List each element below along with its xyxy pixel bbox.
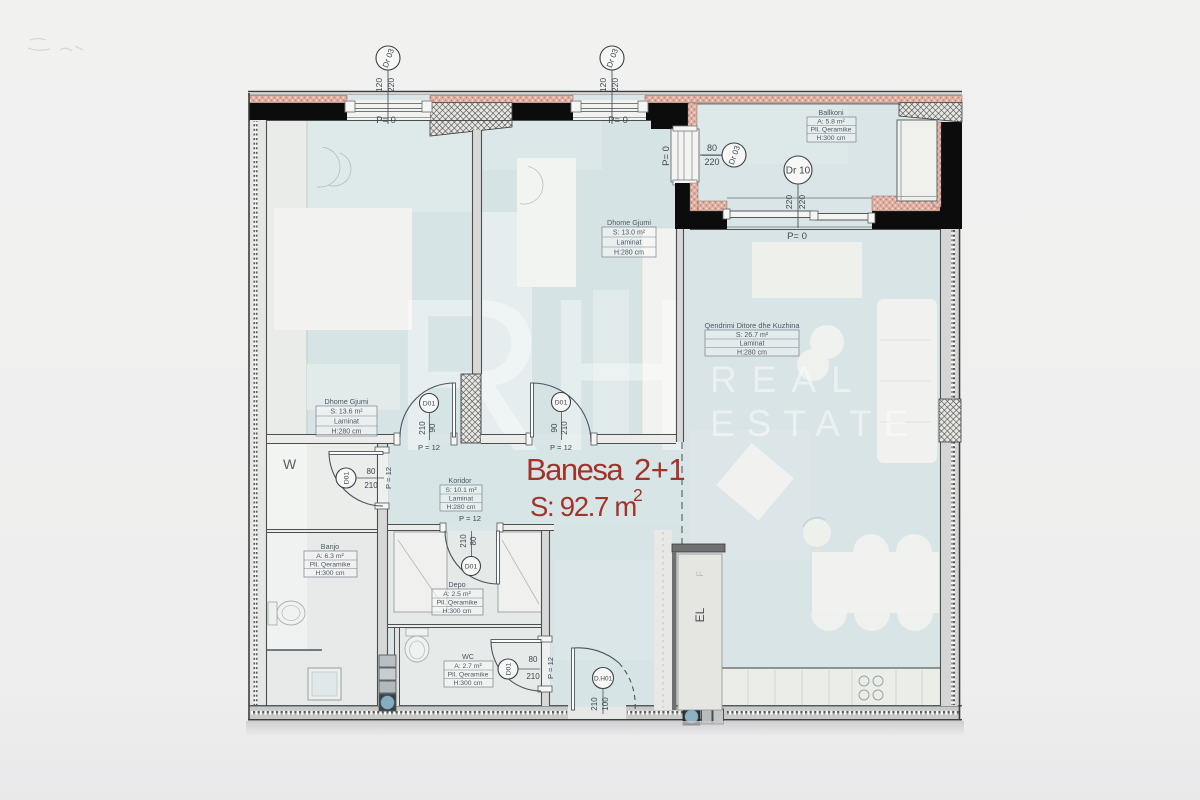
svg-text:Ballkoni: Ballkoni [818,108,844,117]
svg-text:Laminat: Laminat [449,496,473,503]
svg-text:220: 220 [784,195,794,209]
svg-text:P = 12: P = 12 [550,443,572,452]
svg-text:Pll. Qeramike: Pll. Qeramike [448,672,489,679]
svg-text:S: 92.7 m: S: 92.7 m [530,491,636,522]
svg-text:P = 12: P = 12 [546,657,555,679]
svg-text:H:300 cm: H:300 cm [442,608,471,615]
svg-text:A: 2.5 m²: A: 2.5 m² [443,591,471,598]
svg-text:D01: D01 [506,663,513,676]
svg-text:REAL: REAL [710,359,867,400]
svg-text:ESTATE: ESTATE [710,403,920,444]
svg-text:Depo: Depo [448,580,465,589]
svg-text:100: 100 [601,697,610,711]
svg-text:Laminat: Laminat [740,341,765,348]
svg-text:EL: EL [693,607,707,622]
svg-text:220: 220 [386,78,396,92]
svg-text:220: 220 [704,157,719,167]
svg-text:2: 2 [633,485,643,505]
svg-text:90: 90 [428,423,437,432]
svg-text:P= 0: P= 0 [661,146,672,166]
svg-text:Pll. Qeramike: Pll. Qeramike [310,562,351,569]
svg-text:Pll. Qeramike: Pll. Qeramike [811,127,852,134]
svg-text:WC: WC [462,652,474,661]
svg-text:P = 12: P = 12 [418,443,440,452]
svg-text:80: 80 [367,467,376,476]
svg-text:Dr 10: Dr 10 [786,166,811,177]
svg-text:H:280 cm: H:280 cm [332,429,362,436]
svg-text:210: 210 [526,672,540,681]
svg-text:Pll. Qeramike: Pll. Qeramike [437,600,478,607]
svg-text:210: 210 [459,534,468,548]
svg-text:P= 0: P= 0 [376,115,396,126]
svg-text:Laminat: Laminat [334,419,359,426]
svg-text:S: 26.7 m²: S: 26.7 m² [736,332,769,339]
svg-text:Laminat: Laminat [617,240,642,247]
svg-text:80: 80 [529,655,538,664]
svg-text:80: 80 [707,143,717,153]
svg-text:P = 12: P = 12 [384,467,393,489]
svg-text:Qendrimi Ditore dhe Kuzhina: Qendrimi Ditore dhe Kuzhina [705,321,801,330]
svg-text:Banjo: Banjo [321,542,339,551]
svg-text:H:300 cm: H:300 cm [315,570,344,577]
svg-text:210: 210 [590,697,599,711]
svg-text:90: 90 [550,423,559,432]
svg-text:A: 6.3 m²: A: 6.3 m² [316,553,344,560]
svg-text:W: W [283,456,297,472]
svg-text:D01: D01 [344,472,351,485]
svg-text:H:280 cm: H:280 cm [737,350,767,357]
svg-text:220: 220 [797,195,807,209]
svg-text:H:300 cm: H:300 cm [816,135,845,142]
svg-text:120: 120 [374,78,384,92]
svg-text:P = 12: P = 12 [459,514,481,523]
svg-text:P= 0: P= 0 [787,231,807,242]
svg-text:2+1: 2+1 [634,452,685,487]
svg-text:D01: D01 [423,401,436,408]
svg-text:Banesa: Banesa [526,452,624,487]
svg-text:210: 210 [364,481,378,490]
svg-text:S: 13.6 m²: S: 13.6 m² [330,409,363,416]
svg-text:D01: D01 [555,400,568,407]
svg-text:F: F [695,571,705,577]
svg-text:H:280 cm: H:280 cm [614,250,644,257]
svg-text:210: 210 [418,421,427,435]
svg-text:220: 220 [610,78,620,92]
svg-text:120: 120 [598,78,608,92]
svg-text:210: 210 [560,421,569,435]
svg-text:H:300 cm: H:300 cm [453,680,482,687]
svg-text:80: 80 [469,536,478,545]
svg-text:Koridor: Koridor [448,476,472,485]
svg-text:Dhome Gjumi: Dhome Gjumi [325,397,369,406]
svg-text:A: 2.7 m²: A: 2.7 m² [454,663,482,670]
svg-text:S: 10.1 m²: S: 10.1 m² [445,487,477,494]
svg-text:S: 13.0 m²: S: 13.0 m² [613,230,646,237]
svg-text:D01: D01 [465,564,478,571]
svg-text:H:280 cm: H:280 cm [446,504,475,511]
svg-text:D.H01: D.H01 [594,676,613,683]
svg-text:A: 5.8 m²: A: 5.8 m² [817,119,845,126]
svg-text:P= 0: P= 0 [608,115,628,126]
svg-text:Dhome Gjumi: Dhome Gjumi [607,218,651,227]
